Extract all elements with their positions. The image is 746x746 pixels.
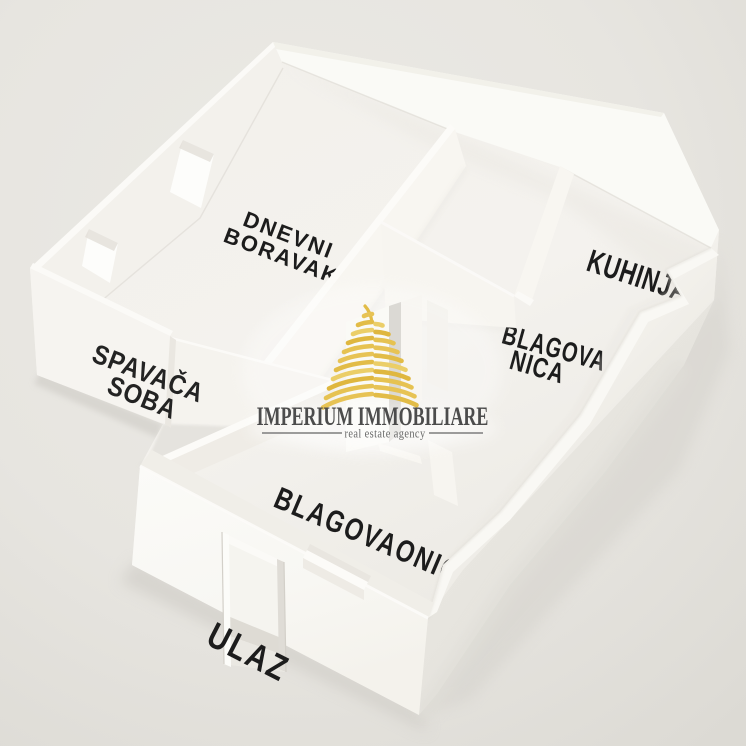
svg-text:real estate agency: real estate agency — [344, 426, 425, 440]
